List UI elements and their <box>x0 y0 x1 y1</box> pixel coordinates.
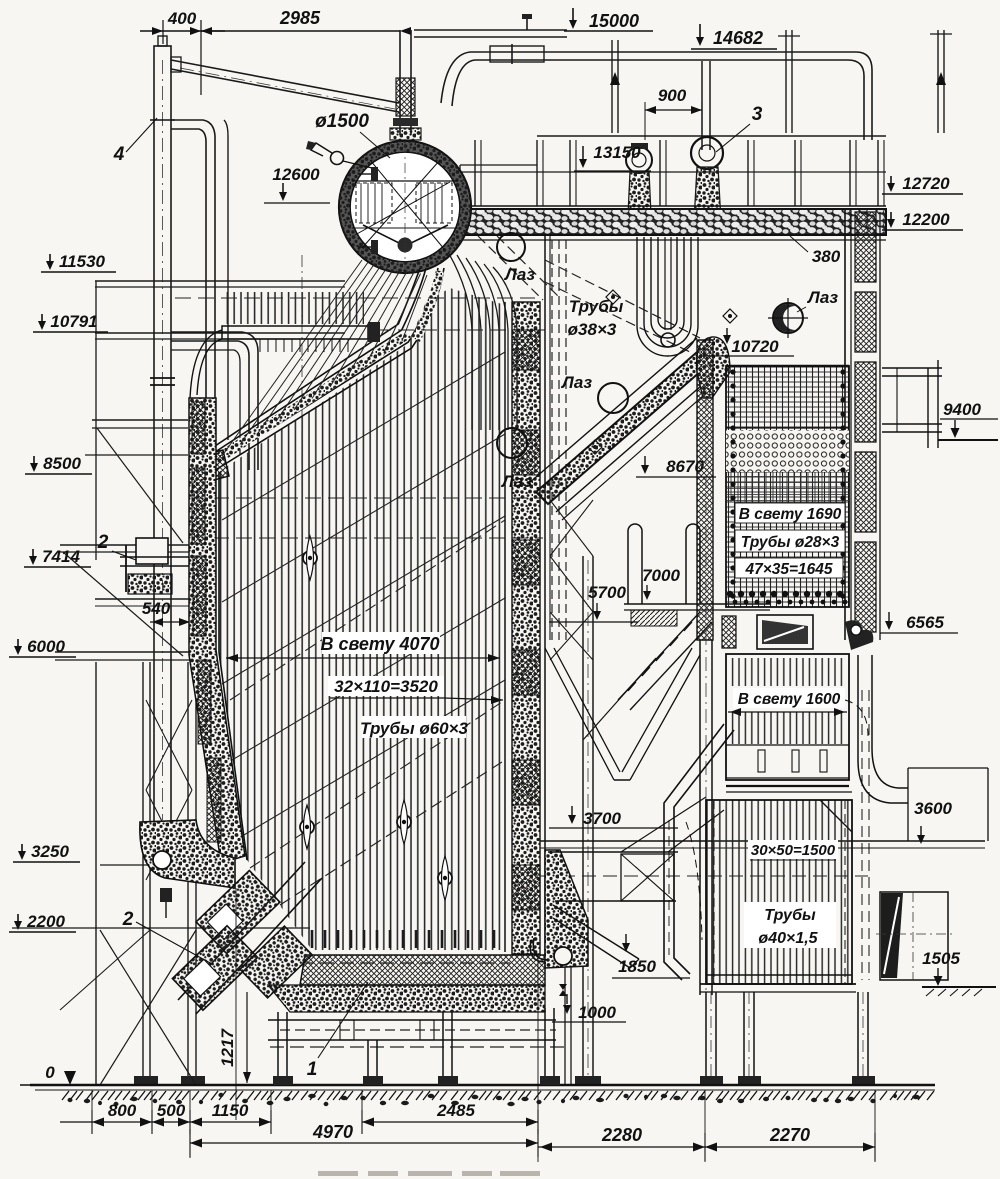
svg-text:2280: 2280 <box>601 1125 642 1145</box>
svg-text:12200: 12200 <box>902 210 950 229</box>
svg-text:ø40×1,5: ø40×1,5 <box>758 930 818 947</box>
svg-text:500: 500 <box>157 1101 186 1120</box>
svg-text:5700: 5700 <box>588 583 626 602</box>
svg-text:Лаз: Лаз <box>806 288 838 307</box>
svg-text:Лаз: Лаз <box>503 265 535 284</box>
svg-text:ø38×3: ø38×3 <box>568 320 617 339</box>
svg-text:14682: 14682 <box>713 28 763 48</box>
svg-text:400: 400 <box>167 9 197 28</box>
svg-text:7000: 7000 <box>642 566 680 585</box>
svg-text:900: 900 <box>658 86 687 105</box>
svg-text:380: 380 <box>812 247 841 266</box>
svg-text:12600: 12600 <box>272 165 320 184</box>
svg-text:30×50=1500: 30×50=1500 <box>751 842 836 859</box>
svg-text:9400: 9400 <box>943 400 981 419</box>
svg-text:1150: 1150 <box>212 1101 249 1120</box>
svg-text:3250: 3250 <box>31 842 69 861</box>
svg-text:0: 0 <box>45 1063 55 1082</box>
svg-text:Трубы: Трубы <box>764 907 816 924</box>
svg-text:Трубы ø60×3: Трубы ø60×3 <box>360 719 469 738</box>
svg-text:1000: 1000 <box>578 1003 616 1022</box>
svg-text:3700: 3700 <box>583 809 621 828</box>
svg-text:Трубы: Трубы <box>569 297 624 316</box>
svg-text:11530: 11530 <box>59 252 106 271</box>
svg-text:800: 800 <box>108 1101 137 1120</box>
svg-text:47×35=1645: 47×35=1645 <box>744 561 832 578</box>
svg-text:6565: 6565 <box>906 613 944 632</box>
svg-text:1850: 1850 <box>618 957 656 976</box>
svg-text:2985: 2985 <box>279 8 321 28</box>
svg-text:10720: 10720 <box>731 337 779 356</box>
svg-text:1: 1 <box>307 1059 318 1080</box>
svg-text:1505: 1505 <box>922 949 960 968</box>
svg-text:3600: 3600 <box>914 799 952 818</box>
svg-text:540: 540 <box>142 599 171 618</box>
svg-text:3: 3 <box>752 104 763 125</box>
svg-text:7414: 7414 <box>42 547 80 566</box>
svg-text:6000: 6000 <box>27 637 65 656</box>
svg-text:8500: 8500 <box>43 454 81 473</box>
svg-text:2: 2 <box>122 909 134 930</box>
svg-text:1217: 1217 <box>218 1028 237 1067</box>
svg-text:Лаз: Лаз <box>560 373 592 392</box>
svg-text:12720: 12720 <box>902 174 950 193</box>
svg-text:ø1500: ø1500 <box>315 111 369 132</box>
svg-text:В свету 4070: В свету 4070 <box>320 634 439 654</box>
svg-text:4970: 4970 <box>312 1122 353 1142</box>
svg-text:2270: 2270 <box>769 1125 810 1145</box>
svg-text:Трубы ø28×3: Трубы ø28×3 <box>741 534 840 551</box>
svg-text:2: 2 <box>97 532 109 553</box>
svg-text:4: 4 <box>113 144 125 165</box>
svg-text:10791: 10791 <box>50 312 97 331</box>
svg-text:15000: 15000 <box>589 11 639 31</box>
svg-text:В свету 1690: В свету 1690 <box>739 506 842 523</box>
svg-text:2485: 2485 <box>436 1101 475 1120</box>
svg-text:32×110=3520: 32×110=3520 <box>334 677 438 696</box>
svg-text:В свету 1600: В свету 1600 <box>738 691 841 708</box>
svg-text:13150: 13150 <box>593 143 641 162</box>
svg-text:Лаз: Лаз <box>500 472 532 491</box>
